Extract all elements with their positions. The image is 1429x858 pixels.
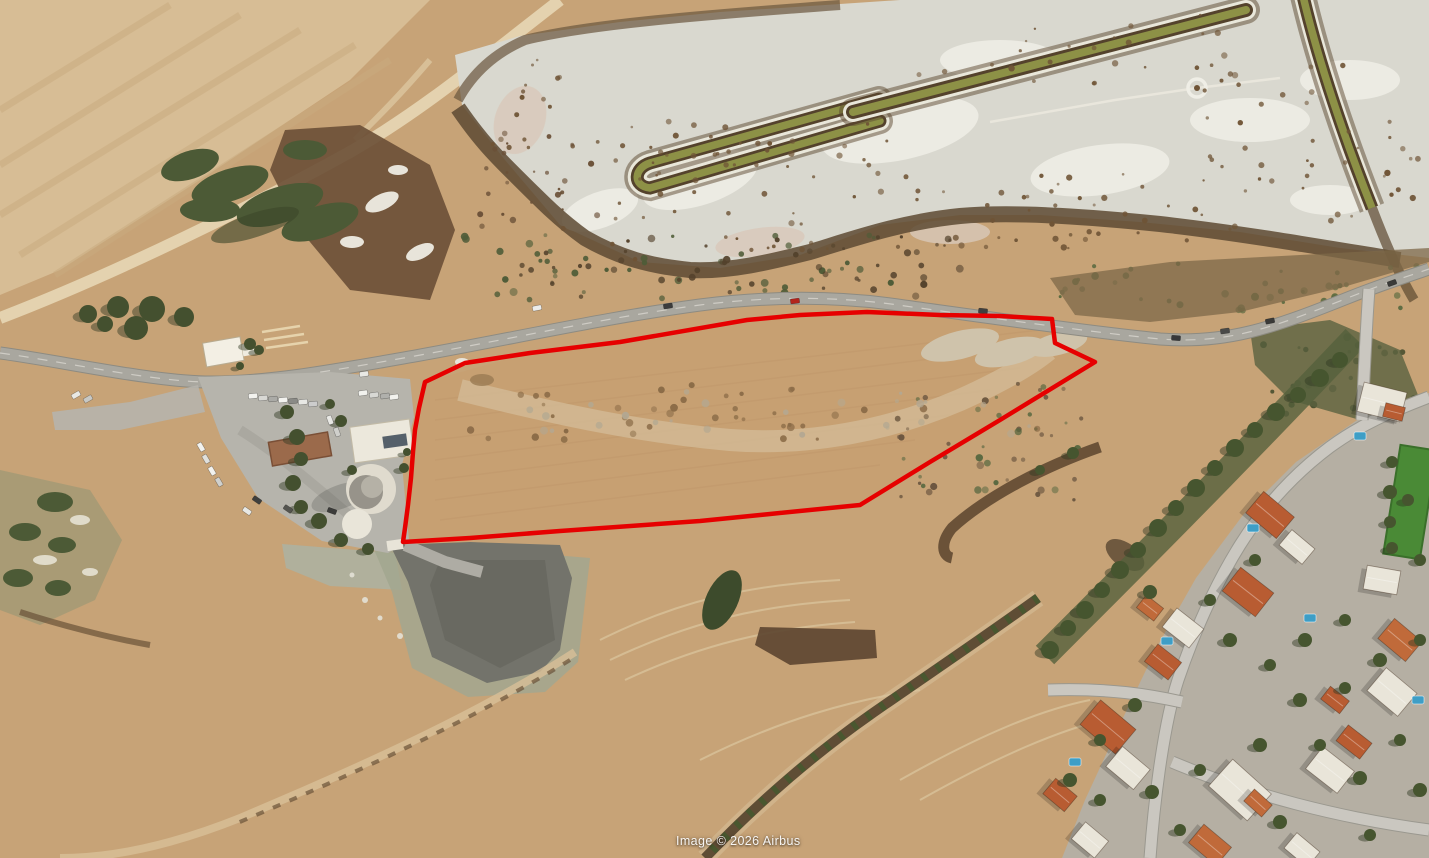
speckle bbox=[691, 122, 697, 128]
speckle bbox=[1122, 173, 1125, 176]
car bbox=[248, 393, 257, 399]
scrub-dot bbox=[1034, 426, 1040, 432]
tree bbox=[335, 415, 347, 427]
speckle bbox=[1128, 23, 1133, 28]
speckle bbox=[1232, 72, 1238, 78]
scrub-dot bbox=[538, 259, 542, 263]
scrub-dot bbox=[1006, 478, 1009, 481]
speckle bbox=[722, 124, 728, 130]
scrub-dot bbox=[831, 244, 835, 248]
scrub-dot bbox=[867, 233, 873, 239]
speckle bbox=[1185, 238, 1189, 242]
scrub-dot bbox=[494, 291, 500, 297]
scrub-dot bbox=[1270, 390, 1274, 394]
speckle bbox=[1311, 139, 1315, 143]
scrub-dot bbox=[666, 410, 674, 418]
speckle bbox=[990, 63, 994, 67]
speckle bbox=[1236, 82, 1241, 87]
scrub-dot bbox=[502, 276, 509, 283]
speckle bbox=[799, 247, 805, 253]
scrub-dot bbox=[861, 407, 868, 414]
pool bbox=[1161, 637, 1173, 645]
speckle bbox=[1092, 81, 1096, 85]
speckle bbox=[1049, 189, 1054, 194]
scrub-dot bbox=[486, 436, 492, 442]
speckle bbox=[692, 190, 696, 194]
tree bbox=[294, 452, 308, 466]
speckle bbox=[484, 166, 488, 170]
tree bbox=[1384, 516, 1396, 528]
speckle bbox=[958, 242, 964, 248]
tree bbox=[1386, 542, 1398, 554]
speckle bbox=[1206, 116, 1209, 119]
scrub-dot bbox=[544, 392, 550, 398]
scrub-dot bbox=[888, 280, 894, 286]
speckle bbox=[853, 195, 856, 198]
speckle bbox=[533, 171, 535, 173]
tree bbox=[1249, 554, 1261, 566]
scrub-dot bbox=[1072, 498, 1075, 501]
speckle bbox=[1008, 65, 1014, 71]
speckle bbox=[1144, 66, 1147, 69]
speckle bbox=[658, 150, 663, 155]
scrub-dot bbox=[1007, 430, 1015, 438]
scrub-dot bbox=[924, 400, 928, 404]
car bbox=[1171, 335, 1180, 341]
scrub-dot bbox=[904, 249, 911, 256]
scrub-dot bbox=[571, 270, 578, 277]
scrub-dot bbox=[956, 265, 964, 273]
scrub-dot bbox=[822, 287, 825, 290]
speckle bbox=[788, 151, 794, 157]
scrub-dot bbox=[923, 395, 928, 400]
speckle bbox=[1053, 203, 1057, 207]
scrub-dot bbox=[519, 273, 523, 277]
tree bbox=[1314, 739, 1326, 751]
scrub-dot bbox=[976, 454, 983, 461]
scrub-dot bbox=[544, 251, 549, 256]
speckle bbox=[1014, 238, 1018, 242]
tree bbox=[1168, 500, 1184, 516]
scrub-dot bbox=[788, 387, 794, 393]
scrub-dot bbox=[799, 432, 805, 438]
tree bbox=[1402, 494, 1414, 506]
scrub-dot bbox=[702, 399, 710, 407]
speckle bbox=[1238, 120, 1243, 125]
scrub-dot bbox=[883, 422, 890, 429]
speckle bbox=[665, 153, 669, 157]
forecourt bbox=[342, 509, 372, 539]
speckle bbox=[1258, 177, 1261, 180]
scrub-dot bbox=[786, 242, 792, 248]
scrub-dot bbox=[739, 251, 745, 257]
tree bbox=[1364, 829, 1376, 841]
tree bbox=[280, 405, 294, 419]
scrub-dot bbox=[518, 392, 524, 398]
scrub-dot bbox=[630, 431, 637, 438]
scrub-dot bbox=[618, 257, 624, 263]
speckle bbox=[657, 171, 661, 175]
speckle bbox=[749, 248, 753, 252]
scrub-dot bbox=[542, 403, 546, 407]
car bbox=[978, 308, 987, 314]
speckle bbox=[486, 192, 491, 197]
scrub-dot bbox=[1038, 487, 1045, 494]
scrub-dot bbox=[739, 392, 743, 396]
speckle bbox=[502, 131, 508, 137]
scrub-dot bbox=[467, 426, 474, 433]
scrub-dot bbox=[890, 272, 897, 279]
scrub-dot bbox=[993, 480, 998, 485]
scrub-dot bbox=[564, 429, 569, 434]
scrub-dot bbox=[918, 482, 921, 485]
speckle bbox=[1140, 185, 1144, 189]
scrub-dot bbox=[902, 457, 906, 461]
speckle bbox=[561, 208, 563, 210]
speckle bbox=[1305, 101, 1309, 105]
speckle bbox=[1092, 46, 1097, 51]
scrub-dot bbox=[582, 290, 586, 294]
scrub-dot bbox=[561, 436, 568, 443]
scrub-dot bbox=[918, 263, 924, 269]
speckle bbox=[842, 144, 847, 149]
speckle bbox=[1228, 228, 1231, 231]
scrub-dot bbox=[842, 247, 845, 250]
speckle bbox=[673, 210, 677, 214]
speckle bbox=[1201, 32, 1204, 35]
speckle bbox=[536, 59, 539, 62]
scrub-dot bbox=[772, 411, 776, 415]
speckle bbox=[788, 220, 794, 226]
tree bbox=[325, 399, 335, 409]
tree bbox=[1373, 653, 1387, 667]
scrub-dot bbox=[872, 236, 876, 240]
speckle bbox=[507, 145, 512, 150]
tree bbox=[1353, 771, 1367, 785]
scrub-dot bbox=[1072, 477, 1077, 482]
scrub-dot bbox=[832, 412, 839, 419]
speckle bbox=[726, 211, 731, 216]
speckle bbox=[1113, 36, 1116, 39]
scrub-dot bbox=[816, 438, 819, 441]
speckle bbox=[1396, 187, 1401, 192]
tree bbox=[1204, 594, 1216, 606]
speckle bbox=[548, 105, 552, 109]
speckle bbox=[1308, 65, 1313, 70]
scrub-dot bbox=[787, 423, 795, 431]
speckle bbox=[726, 149, 731, 154]
scrub-dot bbox=[534, 251, 540, 257]
scrub-dot bbox=[807, 248, 813, 254]
scrub-dot bbox=[926, 489, 933, 496]
speckle bbox=[1220, 165, 1223, 168]
tree bbox=[1035, 465, 1045, 475]
speckle bbox=[491, 142, 495, 146]
pool bbox=[1069, 758, 1081, 766]
speckle bbox=[558, 188, 561, 191]
speckle bbox=[501, 213, 504, 216]
car bbox=[369, 392, 379, 398]
scrub-dot bbox=[920, 281, 927, 288]
speckle bbox=[1167, 205, 1170, 208]
scrub-dot bbox=[658, 387, 665, 394]
speckle bbox=[1142, 218, 1148, 224]
speckle bbox=[1306, 159, 1309, 162]
tree bbox=[254, 345, 264, 355]
tree bbox=[1060, 620, 1076, 636]
scrub-dot bbox=[704, 244, 707, 247]
scrub-dot bbox=[857, 266, 864, 273]
tree bbox=[347, 465, 357, 475]
scrub-dot bbox=[704, 426, 711, 433]
speckle bbox=[631, 126, 634, 129]
scrub-dot bbox=[736, 286, 741, 291]
scrub-dot bbox=[735, 280, 739, 284]
car bbox=[359, 371, 369, 377]
scrub-dot bbox=[622, 412, 629, 419]
scrub-dot bbox=[659, 295, 665, 301]
tree bbox=[1094, 794, 1106, 806]
speckle bbox=[1195, 65, 1200, 70]
scrub-dot bbox=[1052, 486, 1059, 493]
scrub-dot bbox=[916, 400, 924, 408]
speckle bbox=[555, 192, 561, 198]
speckle bbox=[531, 64, 534, 67]
speckle bbox=[691, 153, 697, 159]
scrub-dot bbox=[689, 274, 696, 281]
scrub-dot bbox=[899, 495, 902, 498]
scrub-dot bbox=[651, 406, 657, 412]
car bbox=[790, 298, 800, 304]
speckle bbox=[1415, 156, 1421, 162]
tree bbox=[1339, 682, 1351, 694]
car bbox=[389, 394, 399, 400]
speckle bbox=[570, 143, 574, 147]
scrub-dot bbox=[627, 268, 631, 272]
speckle bbox=[836, 153, 842, 159]
tree bbox=[1290, 387, 1306, 403]
tree bbox=[1063, 773, 1077, 787]
scrub-dot bbox=[1394, 292, 1401, 299]
speckle bbox=[1269, 178, 1274, 183]
tree bbox=[1094, 734, 1106, 746]
speckle bbox=[724, 235, 728, 239]
tree bbox=[1267, 403, 1285, 421]
tree bbox=[1264, 659, 1276, 671]
tree bbox=[1145, 785, 1159, 799]
tree bbox=[1187, 479, 1205, 497]
scrub-dot bbox=[1398, 306, 1403, 311]
speckle bbox=[1302, 187, 1305, 190]
car bbox=[268, 396, 277, 402]
speckle bbox=[693, 177, 699, 183]
scrub-dot bbox=[982, 445, 985, 448]
scrub-dot bbox=[496, 248, 503, 255]
scrub-dot bbox=[977, 462, 985, 470]
scrub-dot bbox=[906, 427, 909, 430]
scrub-dot bbox=[604, 268, 608, 272]
speckle bbox=[1123, 211, 1128, 216]
scrub-dot bbox=[845, 261, 850, 266]
speckle bbox=[520, 95, 525, 100]
scrub-dot bbox=[1028, 412, 1032, 416]
speckle bbox=[1258, 162, 1264, 168]
speckle bbox=[479, 224, 484, 229]
scrub-dot bbox=[611, 267, 617, 273]
speckle bbox=[524, 84, 527, 87]
speckle bbox=[1220, 79, 1224, 83]
speckle bbox=[673, 133, 679, 139]
scrub-dot bbox=[840, 267, 844, 271]
speckle bbox=[1210, 63, 1214, 67]
tree bbox=[1293, 693, 1307, 707]
car bbox=[258, 395, 267, 401]
scrub-dot bbox=[641, 255, 648, 262]
scrub-dot bbox=[783, 409, 789, 415]
car bbox=[1220, 328, 1230, 334]
tree bbox=[1394, 734, 1406, 746]
scrub-dot bbox=[532, 433, 539, 440]
scrub-dot bbox=[615, 405, 622, 412]
speckle bbox=[477, 211, 483, 217]
speckle bbox=[1388, 136, 1391, 139]
speckle bbox=[530, 201, 533, 204]
speckle bbox=[506, 142, 508, 144]
speckle bbox=[1049, 221, 1054, 226]
speckle bbox=[792, 212, 794, 214]
tree bbox=[1067, 447, 1079, 459]
car bbox=[663, 303, 673, 309]
speckle bbox=[596, 140, 600, 144]
speckle bbox=[875, 171, 880, 176]
speckle bbox=[1034, 28, 1036, 30]
scrub-dot bbox=[542, 412, 550, 420]
scrub-dot bbox=[722, 260, 727, 265]
scrub-dot bbox=[749, 281, 755, 287]
speckle bbox=[1409, 157, 1413, 161]
scrub-dot bbox=[578, 264, 582, 268]
speckle bbox=[765, 148, 769, 152]
scrub-dot bbox=[981, 402, 987, 408]
tree bbox=[1041, 641, 1059, 659]
speckle bbox=[658, 191, 664, 197]
scrub-dot bbox=[1079, 416, 1083, 420]
speckle bbox=[917, 72, 922, 77]
scrub-dot bbox=[533, 393, 539, 399]
scrub-dot bbox=[588, 402, 594, 408]
scrub-dot bbox=[895, 399, 899, 403]
speckle bbox=[723, 162, 728, 167]
speckle bbox=[1202, 179, 1204, 181]
scrub-dot bbox=[680, 397, 686, 403]
scrub-dot bbox=[914, 249, 920, 255]
car bbox=[288, 398, 297, 404]
tree bbox=[1273, 815, 1287, 829]
speckle bbox=[1199, 14, 1202, 17]
car bbox=[298, 399, 307, 405]
tree bbox=[289, 429, 305, 445]
speckle bbox=[866, 163, 871, 168]
speckle bbox=[610, 242, 615, 247]
speckle bbox=[800, 222, 803, 225]
speckle bbox=[767, 247, 770, 250]
tree bbox=[285, 475, 301, 491]
scrub-dot bbox=[975, 407, 981, 413]
speckle bbox=[786, 165, 789, 168]
scrub-dot bbox=[724, 394, 729, 399]
speckle bbox=[1137, 231, 1140, 234]
speckle bbox=[915, 198, 918, 201]
speckle bbox=[904, 174, 909, 179]
speckle bbox=[1310, 163, 1314, 167]
scrub-dot bbox=[526, 406, 533, 413]
scrub-dot bbox=[1092, 264, 1096, 268]
car bbox=[380, 393, 390, 399]
scrub-dot bbox=[551, 414, 555, 418]
scrub-dot bbox=[930, 483, 937, 490]
tree bbox=[1253, 738, 1267, 752]
speckle bbox=[1019, 49, 1022, 52]
scrub-dot bbox=[945, 236, 952, 243]
scrub-dot bbox=[540, 427, 548, 435]
speckle bbox=[642, 216, 645, 219]
scrub-dot bbox=[544, 233, 548, 237]
scrub-dot bbox=[626, 239, 630, 243]
speckle bbox=[510, 217, 516, 223]
scrub-dot bbox=[946, 442, 950, 446]
pool bbox=[1412, 696, 1424, 704]
scrub-dot bbox=[733, 406, 738, 411]
speckle bbox=[953, 235, 959, 241]
scrub-dot bbox=[728, 290, 732, 294]
tree bbox=[1414, 554, 1426, 566]
speckle bbox=[997, 236, 1000, 239]
tree bbox=[1332, 352, 1348, 368]
speckle bbox=[652, 161, 655, 164]
speckle bbox=[736, 237, 739, 240]
tree bbox=[1194, 764, 1206, 776]
speckle bbox=[594, 212, 600, 218]
speckle bbox=[541, 97, 546, 102]
scrub-dot bbox=[520, 263, 525, 268]
speckle bbox=[588, 161, 594, 167]
satellite-map-view[interactable]: Image © 2026 Airbus bbox=[0, 0, 1429, 858]
scrub-dot bbox=[982, 486, 989, 493]
scrub-dot bbox=[550, 281, 555, 286]
scrub-dot bbox=[780, 435, 787, 442]
tree bbox=[1174, 824, 1186, 836]
speckle bbox=[1215, 30, 1221, 36]
scrub-dot bbox=[624, 250, 627, 253]
speckle bbox=[772, 245, 776, 249]
scrub-dot bbox=[1015, 428, 1022, 435]
speckle bbox=[1078, 196, 1082, 200]
scrub-dot bbox=[552, 266, 555, 269]
scrub-dot bbox=[583, 256, 588, 261]
scrub-dot bbox=[461, 233, 469, 241]
map-canvas[interactable] bbox=[0, 0, 1429, 858]
speckle bbox=[522, 137, 526, 141]
tree bbox=[1414, 634, 1426, 646]
scrub-dot bbox=[1061, 387, 1065, 391]
speckle bbox=[1305, 174, 1310, 179]
speckle bbox=[1101, 195, 1107, 201]
scrub-dot bbox=[935, 243, 939, 247]
speckle bbox=[1280, 92, 1286, 98]
tree bbox=[1143, 585, 1157, 599]
scrub-dot bbox=[742, 417, 746, 421]
speckle bbox=[984, 245, 988, 249]
